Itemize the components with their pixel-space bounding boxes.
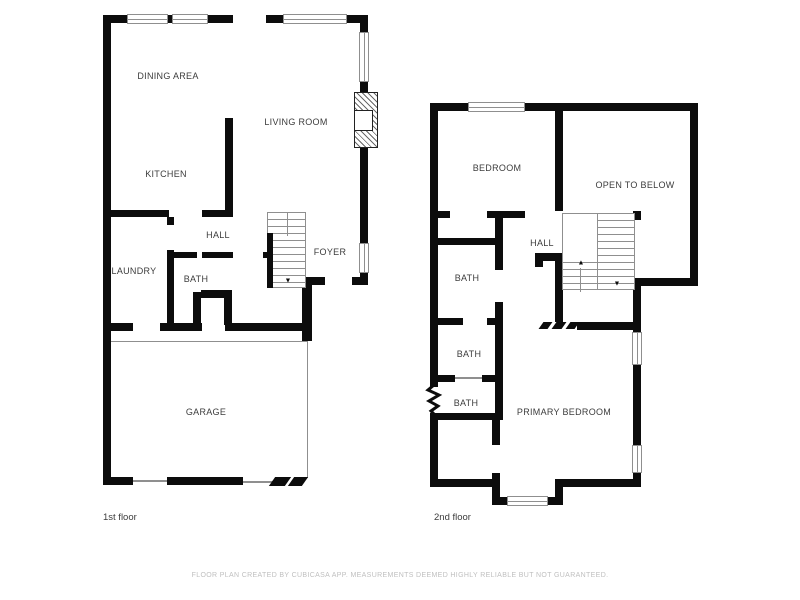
floor-line (133, 480, 167, 482)
wall (167, 477, 243, 485)
window (632, 445, 642, 473)
door-marker (552, 322, 567, 329)
room-label-garage: GARAGE (186, 407, 226, 417)
wall (430, 413, 438, 487)
stair-treads (598, 214, 634, 288)
wall-break-icon (425, 384, 443, 416)
window (127, 14, 168, 24)
room-label-bedroom: BEDROOM (473, 163, 522, 173)
wall (492, 473, 500, 480)
wall (690, 111, 698, 286)
floor-line (243, 481, 273, 483)
garage-door-marker (288, 477, 308, 486)
wall (225, 118, 233, 215)
room-label-bath-upper: BATH (455, 273, 480, 283)
stair-arrow-stem (580, 268, 581, 292)
room-label-dining-area: DINING AREA (137, 71, 198, 81)
wall (266, 15, 283, 23)
wall (438, 318, 463, 325)
room-label-hall-1st: HALL (206, 230, 230, 240)
wall (438, 238, 497, 245)
wall (495, 302, 503, 375)
wall (224, 290, 232, 325)
window (468, 102, 525, 112)
wall (487, 211, 525, 218)
room-label-living-room: LIVING ROOM (264, 117, 327, 127)
wall (111, 323, 133, 331)
stair-divider-line (287, 212, 288, 236)
fireplace (354, 92, 378, 148)
wall (202, 252, 233, 258)
wall (103, 15, 111, 485)
floor-plan-page: ▼ ▲ ▼ DINING AREA LIVING ROOM KITCHEN HA… (0, 0, 800, 600)
wall (225, 323, 302, 331)
room-label-foyer: FOYER (314, 247, 347, 257)
room-label-kitchen: KITCHEN (145, 169, 187, 179)
wall (492, 420, 500, 445)
floor-caption-1st: 1st floor (103, 512, 137, 523)
floor-line (307, 341, 308, 478)
stairs-up-arrow: ▲ (578, 260, 585, 267)
wall (430, 479, 497, 487)
stair-divider-line (597, 213, 598, 290)
wall (525, 103, 698, 111)
wall (435, 413, 497, 420)
wall (438, 375, 455, 382)
room-label-bath-middle: BATH (457, 349, 482, 359)
wall (555, 479, 641, 487)
room-label-laundry: LAUNDRY (112, 266, 157, 276)
wall (193, 292, 201, 325)
wall (633, 286, 641, 332)
pocket-door-line (455, 377, 482, 379)
window (632, 332, 642, 365)
wall (430, 103, 468, 111)
room-label-open-to-below: OPEN TO BELOW (595, 180, 674, 190)
stairs-down-arrow: ▼ (614, 281, 621, 288)
wall (555, 111, 563, 211)
wall (267, 233, 273, 288)
room-label-bath-1st: BATH (184, 274, 209, 284)
room-label-bath-lower: BATH (454, 398, 479, 408)
wall (160, 323, 202, 331)
wall (167, 217, 174, 225)
window (359, 32, 369, 82)
wall (535, 253, 543, 267)
window (172, 14, 208, 24)
wall (633, 278, 698, 286)
wall (352, 277, 368, 285)
window (359, 243, 369, 273)
room-label-primary-bedroom: PRIMARY BEDROOM (517, 407, 611, 417)
room-label-hall-2nd: HALL (530, 238, 554, 248)
door-marker (539, 322, 553, 329)
firebox (355, 110, 373, 131)
wall (360, 147, 368, 243)
window (283, 14, 347, 24)
wall (167, 252, 197, 258)
wall (633, 365, 641, 445)
wall (577, 322, 633, 330)
stairs-down-arrow: ▼ (285, 278, 292, 285)
wall (487, 318, 503, 325)
wall (167, 250, 174, 325)
wall (103, 210, 169, 217)
floor-caption-2nd: 2nd floor (434, 512, 471, 523)
wall (202, 210, 233, 217)
wall (482, 375, 503, 382)
wall (438, 211, 450, 218)
wall (360, 15, 368, 32)
window (507, 496, 548, 506)
footer-disclaimer: FLOOR PLAN CREATED BY CUBICASA APP. MEAS… (0, 572, 800, 579)
wall (103, 477, 133, 485)
floor-line (111, 341, 308, 342)
wall (208, 15, 233, 23)
wall (430, 111, 438, 387)
wall (492, 497, 507, 505)
